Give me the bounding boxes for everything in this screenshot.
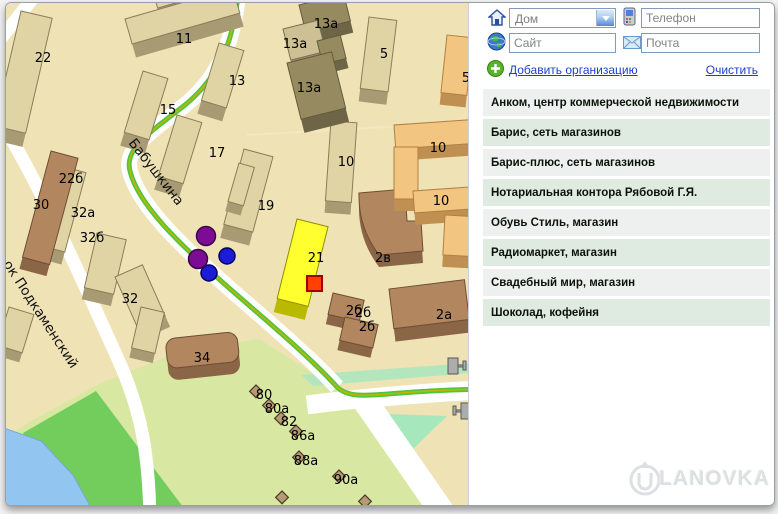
svg-text:2б: 2б	[355, 306, 371, 321]
svg-text:80: 80	[256, 388, 273, 403]
house-select-value: Дом	[515, 12, 538, 26]
svg-text:10: 10	[433, 194, 450, 209]
map-app-window: Бабушкина ок Подкаменский 22 11 13а 13а …	[5, 2, 775, 506]
svg-text:13а: 13а	[283, 37, 308, 52]
add-icon[interactable]	[487, 60, 504, 77]
phone-icon	[622, 7, 637, 27]
org-list-item[interactable]: Нотариальная контора Рябовой Г.Я.	[483, 179, 770, 206]
org-list-item[interactable]: Шоколад, кофейня	[483, 299, 770, 326]
svg-text:32: 32	[122, 292, 139, 307]
mail-input[interactable]	[641, 33, 760, 53]
svg-text:82: 82	[281, 415, 298, 430]
purple-marker[interactable]	[197, 227, 216, 246]
org-list-item[interactable]: Обувь Стиль, магазин	[483, 209, 770, 236]
org-list-item[interactable]: Барис-плюс, сеть магазинов	[483, 149, 770, 176]
house-icon	[488, 9, 506, 26]
selected-location-marker[interactable]	[307, 276, 322, 291]
svg-text:22: 22	[35, 51, 52, 66]
clear-link[interactable]: Очистить	[706, 63, 758, 77]
svg-text:30: 30	[33, 198, 50, 213]
org-list-item[interactable]: Анком, центр коммерческой недвижимости	[483, 89, 770, 116]
svg-text:10: 10	[430, 141, 447, 156]
chevron-down-icon[interactable]	[596, 10, 614, 26]
svg-text:13а: 13а	[314, 17, 339, 32]
mail-icon	[623, 36, 641, 49]
svg-text:11: 11	[176, 32, 193, 47]
svg-text:86а: 86а	[291, 429, 316, 444]
svg-text:90а: 90а	[334, 473, 359, 488]
house-select[interactable]: Дом	[509, 8, 616, 28]
app-screenshot: Бабушкина ок Подкаменский 22 11 13а 13а …	[0, 0, 778, 514]
svg-text:2б: 2б	[359, 320, 375, 335]
svg-text:10: 10	[338, 155, 355, 170]
org-list-item[interactable]: Радиомаркет, магазин	[483, 239, 770, 266]
globe-icon	[487, 32, 506, 51]
site-input[interactable]	[509, 33, 616, 53]
svg-text:88а: 88а	[294, 454, 319, 469]
search-panel: Дом Добавить организацию Очис	[468, 3, 774, 505]
org-list-item[interactable]: Свадебный мир, магазин	[483, 269, 770, 296]
building-2a	[389, 280, 468, 342]
purple-marker[interactable]	[189, 250, 208, 269]
svg-text:13а: 13а	[297, 81, 322, 96]
svg-text:19: 19	[258, 199, 275, 214]
svg-text:34: 34	[194, 351, 211, 366]
phone-input[interactable]	[641, 8, 760, 28]
svg-text:2а: 2а	[436, 308, 452, 323]
svg-text:32а: 32а	[71, 206, 96, 221]
blue-marker[interactable]	[219, 248, 235, 264]
map-canvas: Бабушкина ок Подкаменский 22 11 13а 13а …	[6, 3, 468, 505]
svg-text:17: 17	[209, 146, 226, 161]
svg-text:32б: 32б	[80, 231, 105, 246]
org-list-item[interactable]: Барис, сеть магазинов	[483, 119, 770, 146]
add-organization-link[interactable]: Добавить организацию	[509, 63, 638, 77]
svg-text:15: 15	[160, 103, 177, 118]
building-10-orange	[442, 215, 468, 268]
svg-text:13: 13	[229, 74, 246, 89]
svg-text:22б: 22б	[59, 172, 84, 187]
svg-text:2в: 2в	[375, 251, 391, 266]
svg-text:21: 21	[308, 251, 325, 266]
map-viewport[interactable]: Бабушкина ок Подкаменский 22 11 13а 13а …	[6, 3, 468, 505]
svg-text:5: 5	[380, 47, 388, 62]
